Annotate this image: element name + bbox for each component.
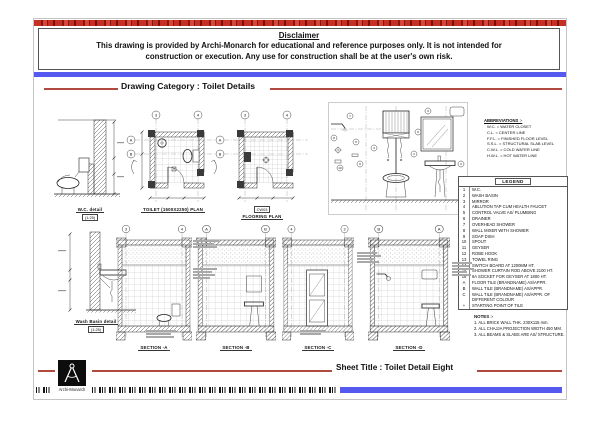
legend-table: LEGEND 1W.C. 2WASH BASIN 3MIRROR 4ABLUTI… <box>458 176 568 310</box>
grid-bubble: 3 <box>125 226 127 231</box>
svg-text:2: 2 <box>460 162 462 166</box>
wc-detail-drawing <box>50 114 130 206</box>
annotation-text-blurb <box>357 252 383 263</box>
disclaimer-box: Disclaimer This drawing is provided by A… <box>38 28 560 70</box>
svg-text:1: 1 <box>413 152 415 156</box>
footer-rule-dash <box>38 370 55 372</box>
section-a-drawing: 3 4 <box>116 224 192 344</box>
annotation-text-blurb <box>146 330 178 338</box>
note-item: 3. ALL BEAMS & SLABS ARE AS/ STRUCTURE. <box>474 332 570 338</box>
barcode-strip <box>92 387 336 393</box>
disclaimer-line-1: This drawing is provided by Archi-Monarc… <box>39 41 559 52</box>
grid-bubble: A <box>438 226 441 231</box>
wall-section <box>90 232 100 310</box>
legend-row: +STARTING POINT OF TILE <box>459 303 567 309</box>
footer-rule-right <box>477 370 562 372</box>
figure-flooring-plan: 3 4 A B CW03 FLOORING PLAN <box>214 110 310 220</box>
wc-detail-title: W.C. detail <box>76 207 104 213</box>
figure-wc-detail: W.C. detail (1:25) <box>50 114 130 221</box>
grid-bubble: B <box>377 226 380 231</box>
legend-title: LEGEND <box>495 178 531 185</box>
abbreviations-block: ABBREVIATIONS :- W.C. = WATER CLOSET C.L… <box>484 118 568 159</box>
svg-text:9: 9 <box>359 162 361 166</box>
annotation-text-blurb <box>193 268 221 279</box>
flooring-plan-title: FLOORING PLAN <box>241 214 284 220</box>
cistern <box>79 158 89 172</box>
toilet-plan-drawing: 3 4 A B <box>126 110 220 206</box>
grid-bubble: B <box>130 151 133 156</box>
section-c-title: SECTION -C <box>302 345 333 351</box>
toilet-elevation-drawing: 7 8 5 10 9 4 1 3 2 6 <box>328 102 468 218</box>
abbreviation-item: H.W.L. = HOT WATER LINE <box>484 153 568 159</box>
section-d-drawing: B A <box>368 224 450 344</box>
compass-icon <box>58 360 86 386</box>
svg-text:5: 5 <box>355 140 357 144</box>
section-cut-arrow <box>132 160 137 174</box>
svg-text:3: 3 <box>427 109 429 113</box>
wc-tank-plan <box>193 150 199 162</box>
section-b-title: SECTION -B <box>220 345 251 351</box>
grid-bubble: B <box>219 151 222 156</box>
annotation-text-blurb <box>193 240 221 248</box>
archi-monarch-logo <box>58 360 86 386</box>
section-a-title: SECTION -A <box>138 345 169 351</box>
section-c-drawing: 4 3 <box>282 224 354 344</box>
blue-divider-strip <box>34 72 566 77</box>
grid-bubble: 3 <box>155 112 157 117</box>
section-d-title: SECTION -D <box>393 345 424 351</box>
grid-bubble: B <box>264 226 267 231</box>
svg-text:7: 7 <box>349 114 351 118</box>
disclaimer-line-2: construction or execution. Any use for c… <box>39 52 559 63</box>
grid-bubble: 4 <box>290 227 292 231</box>
category-rule-right <box>270 88 562 90</box>
wall-section <box>94 120 106 194</box>
legend-rows: 1W.C. 2WASH BASIN 3MIRROR 4ABLUTION TAP … <box>459 186 567 309</box>
legend-row: CWALL TILE (BRANDNAME) AS/APPR. OF DIFFE… <box>459 292 567 304</box>
figure-section-d: B A SECTION -D <box>368 224 450 351</box>
wc-detail-scale: (1:25) <box>82 214 98 221</box>
footer-rule-left <box>92 370 332 372</box>
flush-tank <box>383 111 409 174</box>
toilet-plan-title: TOILET (1500X2250) PLAN <box>141 207 205 213</box>
svg-text:6: 6 <box>417 130 419 134</box>
brand-name: Archi-Monarch <box>52 387 92 392</box>
figure-toilet-elevation: 7 8 5 10 9 4 1 3 2 6 <box>328 102 468 218</box>
annotation-text-blurb <box>300 330 328 335</box>
wash-basin-elevation <box>425 156 455 197</box>
disclaimer-title: Disclaimer <box>39 31 559 41</box>
drawing-sheet: Disclaimer This drawing is provided by A… <box>0 0 600 424</box>
threshold-patch <box>244 152 251 162</box>
grid-bubble: A <box>219 137 222 142</box>
wash-basin-detail-scale: (1:25) <box>88 326 104 333</box>
mirror <box>421 117 453 151</box>
grid-bubble: 3 <box>244 112 246 117</box>
figure-toilet-plan: 3 4 A B TOILET (1500X2250) PLAN <box>126 110 220 213</box>
category-rule-left <box>44 88 118 90</box>
svg-text:10: 10 <box>338 166 342 170</box>
geyser <box>450 107 464 116</box>
annotation-text-blurb <box>452 262 476 276</box>
flooring-plan-tag: CW03 <box>254 206 271 213</box>
grid-bubble: A <box>205 226 208 231</box>
door-elevation <box>307 270 328 326</box>
wash-basin-detail-title: Wash Basin detail <box>74 319 119 325</box>
blue-footer-bar <box>340 387 562 393</box>
grid-bubble: 3 <box>344 227 346 231</box>
top-barcode-strip <box>34 20 566 26</box>
notes-block: NOTES :- 1. ALL BRICK WALL THK. 230X115 … <box>474 314 570 338</box>
barcode-strip-small <box>36 387 50 393</box>
sheet-title: Sheet Title : Toilet Detail Eight <box>336 363 453 372</box>
grid-bubble: A <box>130 137 133 142</box>
category-title: Drawing Category : Toilet Details <box>121 81 255 91</box>
flooring-plan-drawing: 3 4 A B <box>214 110 310 206</box>
svg-text:8: 8 <box>333 136 335 140</box>
svg-text:4: 4 <box>373 146 375 150</box>
wall-tiles <box>122 265 186 326</box>
